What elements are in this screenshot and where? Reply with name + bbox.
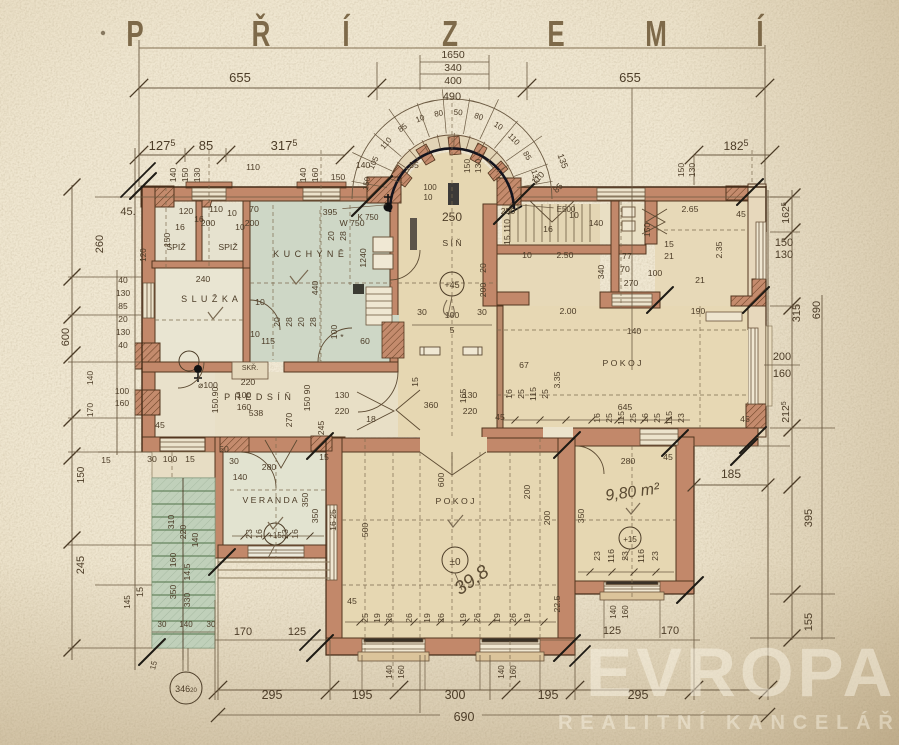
svg-text:19: 19 bbox=[422, 613, 432, 623]
svg-text:60: 60 bbox=[360, 336, 370, 346]
svg-text:350: 350 bbox=[576, 509, 586, 524]
svg-text:15: 15 bbox=[135, 587, 145, 597]
svg-text:280: 280 bbox=[621, 456, 636, 466]
svg-text:260: 260 bbox=[94, 235, 106, 253]
svg-text:28: 28 bbox=[284, 317, 294, 327]
svg-text:140: 140 bbox=[168, 168, 178, 183]
svg-text:85: 85 bbox=[199, 138, 213, 153]
svg-text:140: 140 bbox=[85, 371, 95, 385]
svg-text:K U C H Y N Ě: K U C H Y N Ě bbox=[273, 249, 345, 259]
svg-text:15.110: 15.110 bbox=[502, 219, 512, 245]
svg-text:10: 10 bbox=[250, 329, 260, 339]
svg-text:Ř: Ř bbox=[252, 13, 271, 54]
svg-text:45.: 45. bbox=[120, 206, 135, 218]
svg-text:140: 140 bbox=[609, 605, 618, 619]
svg-text:330: 330 bbox=[182, 593, 192, 608]
svg-text:21: 21 bbox=[664, 251, 674, 261]
svg-text:10: 10 bbox=[227, 208, 237, 218]
svg-text:140: 140 bbox=[497, 665, 506, 679]
svg-text:20: 20 bbox=[118, 314, 128, 324]
svg-text:115: 115 bbox=[528, 387, 538, 401]
svg-text:30: 30 bbox=[147, 454, 157, 464]
svg-text:150.90: 150.90 bbox=[210, 387, 220, 414]
svg-text:360: 360 bbox=[424, 400, 439, 410]
svg-text:50: 50 bbox=[453, 108, 463, 118]
svg-text:125: 125 bbox=[288, 626, 306, 638]
svg-text:3.35: 3.35 bbox=[552, 371, 562, 388]
svg-text:30: 30 bbox=[417, 307, 427, 317]
svg-text:45: 45 bbox=[495, 412, 505, 422]
svg-text:130: 130 bbox=[687, 163, 697, 177]
svg-text:P O K O J: P O K O J bbox=[436, 496, 475, 506]
svg-text:340: 340 bbox=[596, 265, 606, 280]
svg-text:195: 195 bbox=[352, 688, 373, 702]
svg-text:655: 655 bbox=[229, 70, 251, 85]
svg-text:300: 300 bbox=[445, 688, 466, 702]
svg-text:+15: +15 bbox=[623, 535, 637, 544]
svg-text:130: 130 bbox=[463, 390, 478, 400]
svg-text:100: 100 bbox=[163, 454, 178, 464]
svg-text:190: 190 bbox=[691, 306, 706, 316]
svg-text:15: 15 bbox=[410, 377, 420, 387]
svg-text:25: 25 bbox=[652, 413, 662, 423]
svg-text:160: 160 bbox=[397, 665, 406, 679]
svg-text:140: 140 bbox=[589, 218, 604, 228]
svg-text:116: 116 bbox=[636, 549, 646, 563]
svg-text:30: 30 bbox=[229, 456, 239, 466]
svg-text:30: 30 bbox=[207, 620, 216, 629]
svg-text:10: 10 bbox=[522, 250, 532, 260]
svg-text:150: 150 bbox=[775, 237, 793, 249]
svg-text:400: 400 bbox=[444, 75, 462, 87]
svg-text:30: 30 bbox=[158, 620, 167, 629]
svg-text:690: 690 bbox=[811, 301, 823, 319]
svg-text:120: 120 bbox=[139, 248, 148, 262]
svg-text:23: 23 bbox=[650, 551, 660, 561]
svg-text:21: 21 bbox=[695, 275, 705, 285]
svg-text:315: 315 bbox=[791, 304, 803, 322]
svg-text:20: 20 bbox=[272, 317, 282, 327]
svg-text:116: 116 bbox=[606, 549, 616, 563]
svg-text:395: 395 bbox=[323, 207, 338, 217]
svg-text:45: 45 bbox=[740, 414, 750, 424]
svg-text:22.5: 22.5 bbox=[552, 595, 562, 612]
svg-text:40: 40 bbox=[118, 275, 128, 285]
svg-text:30: 30 bbox=[477, 307, 487, 317]
svg-text:15: 15 bbox=[319, 452, 329, 462]
svg-text:25: 25 bbox=[540, 389, 550, 399]
svg-text:160: 160 bbox=[237, 402, 252, 412]
svg-text:350: 350 bbox=[300, 493, 310, 508]
svg-text:350: 350 bbox=[168, 585, 178, 600]
svg-text:395: 395 bbox=[803, 509, 815, 527]
svg-text:690: 690 bbox=[454, 710, 475, 724]
svg-text:140: 140 bbox=[233, 472, 248, 482]
svg-text:14.5: 14.5 bbox=[182, 563, 192, 580]
svg-text:Í: Í bbox=[756, 14, 764, 54]
svg-text:16: 16 bbox=[175, 222, 185, 232]
svg-text:67: 67 bbox=[519, 360, 529, 370]
svg-text:220: 220 bbox=[335, 406, 350, 416]
svg-text:2.00: 2.00 bbox=[560, 306, 577, 316]
svg-text:2.35: 2.35 bbox=[714, 241, 724, 258]
svg-text:SKŘ.: SKŘ. bbox=[242, 363, 258, 372]
svg-text:130: 130 bbox=[116, 327, 130, 337]
svg-text:280: 280 bbox=[262, 462, 277, 472]
svg-text:16: 16 bbox=[504, 389, 514, 399]
svg-text:+45: +45 bbox=[444, 280, 459, 290]
svg-text:220: 220 bbox=[463, 406, 478, 416]
svg-text:295: 295 bbox=[262, 688, 283, 702]
svg-text:120: 120 bbox=[179, 206, 194, 216]
svg-text:45: 45 bbox=[736, 209, 746, 219]
svg-text:20: 20 bbox=[296, 317, 306, 327]
svg-text:18: 18 bbox=[366, 414, 376, 424]
svg-text:115: 115 bbox=[261, 336, 275, 346]
svg-text:S L U Ž K A: S L U Ž K A bbox=[181, 294, 239, 304]
svg-text:+15: +15 bbox=[268, 531, 282, 540]
svg-text:1240: 1240 bbox=[358, 248, 368, 267]
svg-text:645: 645 bbox=[618, 402, 633, 412]
svg-text:160: 160 bbox=[115, 398, 129, 408]
svg-text:S Í Ň: S Í Ň bbox=[442, 238, 461, 248]
svg-text:150: 150 bbox=[331, 172, 346, 182]
svg-text:150: 150 bbox=[676, 163, 686, 177]
svg-text:340: 340 bbox=[444, 62, 462, 74]
svg-text:10: 10 bbox=[569, 210, 579, 220]
svg-text:110: 110 bbox=[246, 162, 260, 172]
svg-text:P: P bbox=[126, 14, 143, 54]
svg-text:19: 19 bbox=[492, 613, 502, 623]
svg-text:M: M bbox=[645, 14, 667, 54]
svg-text:130: 130 bbox=[192, 168, 202, 183]
svg-text:200: 200 bbox=[478, 283, 488, 298]
svg-text:19: 19 bbox=[372, 613, 382, 623]
svg-text:25: 25 bbox=[628, 413, 638, 423]
svg-text:Í: Í bbox=[342, 14, 350, 54]
svg-text:200: 200 bbox=[773, 351, 791, 363]
svg-text:145: 145 bbox=[123, 595, 132, 609]
svg-text:140: 140 bbox=[190, 533, 200, 548]
svg-text:70: 70 bbox=[249, 204, 259, 214]
svg-text:25: 25 bbox=[604, 413, 614, 423]
svg-text:25: 25 bbox=[516, 389, 526, 399]
svg-text:200: 200 bbox=[245, 218, 260, 228]
svg-text:2.65: 2.65 bbox=[682, 204, 699, 214]
svg-text:26: 26 bbox=[508, 613, 518, 623]
svg-text:600: 600 bbox=[436, 473, 446, 488]
svg-text:16: 16 bbox=[254, 529, 264, 539]
svg-text:REALITNÍ KANCELÁŘ: REALITNÍ KANCELÁŘ bbox=[558, 710, 899, 734]
svg-text:440: 440 bbox=[310, 281, 320, 296]
svg-text:EVROPA: EVROPA bbox=[586, 634, 896, 711]
svg-text:26: 26 bbox=[404, 613, 414, 623]
svg-text:45: 45 bbox=[347, 596, 357, 606]
svg-text:220: 220 bbox=[178, 525, 188, 540]
svg-text:310: 310 bbox=[166, 515, 176, 530]
svg-text:±0: ±0 bbox=[449, 557, 460, 568]
svg-text:240: 240 bbox=[196, 274, 211, 284]
svg-text:70: 70 bbox=[620, 264, 630, 274]
svg-text:85: 85 bbox=[118, 301, 128, 311]
svg-text:150: 150 bbox=[642, 223, 652, 238]
svg-text:45: 45 bbox=[663, 452, 673, 462]
svg-text:2.50: 2.50 bbox=[557, 250, 574, 260]
svg-text:130: 130 bbox=[473, 159, 483, 173]
svg-text:55: 55 bbox=[409, 160, 419, 170]
svg-text:19: 19 bbox=[522, 613, 532, 623]
svg-text:26: 26 bbox=[472, 613, 482, 623]
svg-text:140: 140 bbox=[627, 326, 642, 336]
svg-text:200: 200 bbox=[542, 511, 552, 526]
svg-text:25: 25 bbox=[360, 613, 370, 623]
svg-text:170: 170 bbox=[234, 626, 252, 638]
svg-text:28: 28 bbox=[308, 317, 318, 327]
svg-text:160: 160 bbox=[168, 553, 178, 568]
svg-text:28: 28 bbox=[338, 231, 348, 241]
svg-text:270: 270 bbox=[624, 278, 639, 288]
svg-text:160: 160 bbox=[773, 368, 791, 380]
svg-text:SPIŽ: SPIŽ bbox=[218, 242, 238, 252]
svg-text:250: 250 bbox=[501, 206, 516, 216]
svg-text:100: 100 bbox=[423, 183, 437, 192]
svg-text:77: 77 bbox=[622, 251, 632, 261]
svg-text:245: 245 bbox=[75, 556, 87, 574]
svg-text:45: 45 bbox=[155, 420, 165, 430]
svg-text:185: 185 bbox=[721, 467, 741, 481]
svg-text:16: 16 bbox=[640, 413, 650, 423]
svg-text:350: 350 bbox=[310, 509, 320, 524]
svg-text:15: 15 bbox=[101, 455, 111, 465]
svg-text:23: 23 bbox=[676, 413, 686, 423]
svg-text:155: 155 bbox=[803, 613, 815, 631]
svg-text:200: 200 bbox=[522, 485, 532, 500]
svg-text:20: 20 bbox=[478, 263, 488, 273]
svg-text:140: 140 bbox=[179, 620, 193, 629]
svg-text:110: 110 bbox=[209, 204, 223, 214]
svg-text:16 25: 16 25 bbox=[328, 509, 338, 531]
svg-text:130: 130 bbox=[335, 390, 350, 400]
svg-text:Z: Z bbox=[442, 14, 458, 54]
svg-text:16: 16 bbox=[543, 224, 553, 234]
svg-text:16: 16 bbox=[290, 529, 300, 539]
svg-text:160: 160 bbox=[310, 168, 320, 183]
svg-text:100: 100 bbox=[329, 325, 339, 340]
svg-text:10: 10 bbox=[235, 222, 245, 232]
svg-text:20: 20 bbox=[326, 231, 336, 241]
svg-text:100: 100 bbox=[648, 268, 663, 278]
svg-text:40: 40 bbox=[118, 340, 128, 350]
svg-text:150: 150 bbox=[180, 168, 190, 183]
svg-text:W 750: W 750 bbox=[339, 218, 364, 228]
svg-text:130: 130 bbox=[116, 288, 130, 298]
svg-text:220: 220 bbox=[241, 377, 256, 387]
svg-text:170: 170 bbox=[85, 403, 95, 417]
svg-text:5: 5 bbox=[450, 325, 455, 335]
svg-text:115: 115 bbox=[616, 411, 626, 425]
svg-text:270: 270 bbox=[284, 413, 294, 428]
svg-text:160: 160 bbox=[621, 605, 630, 619]
svg-text:10: 10 bbox=[255, 297, 265, 307]
svg-text:P O K O J: P O K O J bbox=[603, 358, 642, 368]
svg-text:150: 150 bbox=[462, 159, 472, 173]
svg-text:100: 100 bbox=[115, 386, 129, 396]
svg-text:150: 150 bbox=[76, 466, 87, 483]
svg-text:23: 23 bbox=[592, 551, 602, 561]
svg-text:200: 200 bbox=[201, 218, 216, 228]
svg-text:140: 140 bbox=[356, 160, 371, 170]
svg-text:500: 500 bbox=[360, 523, 370, 538]
svg-text:130: 130 bbox=[775, 249, 793, 261]
svg-text:140: 140 bbox=[298, 168, 308, 183]
svg-text:150: 150 bbox=[162, 233, 172, 248]
svg-text:600: 600 bbox=[60, 328, 72, 346]
svg-text:245: 245 bbox=[316, 421, 326, 436]
svg-text:15: 15 bbox=[185, 454, 195, 464]
svg-text:P Ř E D S Í Ň: P Ř E D S Í Ň bbox=[224, 392, 292, 402]
svg-text:655: 655 bbox=[619, 70, 641, 85]
svg-text:E: E bbox=[547, 14, 564, 54]
svg-text:150 90: 150 90 bbox=[302, 385, 312, 412]
svg-text:15: 15 bbox=[664, 239, 674, 249]
svg-text:V E R A N D A: V E R A N D A bbox=[242, 495, 297, 505]
svg-text:10: 10 bbox=[424, 193, 433, 202]
svg-text:195: 195 bbox=[538, 688, 559, 702]
svg-text:50: 50 bbox=[219, 444, 229, 454]
